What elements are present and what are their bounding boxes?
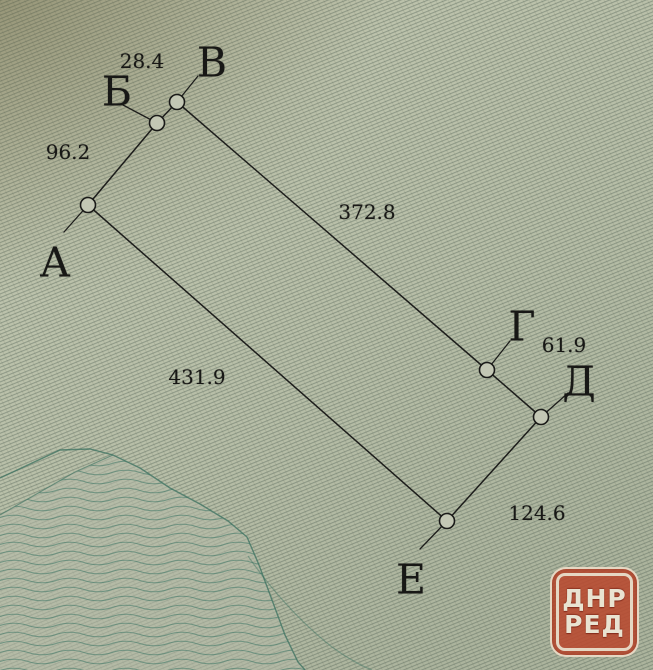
side-length-bv: 28.4 (120, 51, 165, 71)
side-length-ab: 96.2 (46, 142, 91, 162)
vertex-label-e: Е (396, 560, 426, 601)
vertex-label-g: Г (508, 307, 535, 348)
side-length-ea: 431.9 (168, 367, 225, 387)
vertex-label-d: Д (562, 362, 595, 403)
vertex-marker-a (81, 198, 96, 213)
side-length-de: 124.6 (508, 503, 565, 523)
vertex-marker-e (440, 514, 455, 529)
scanned-survey-map: А Б В Г Д Е 96.2 28.4 372.8 61.9 124.6 4… (0, 0, 653, 670)
vertex-marker-d (534, 410, 549, 425)
watermark-line-1: ДНР (562, 587, 627, 611)
vertex-marker-b (150, 116, 165, 131)
vertex-label-b: Б (102, 72, 132, 113)
watermark-line-2: РЕД (564, 613, 625, 637)
side-length-gd: 61.9 (542, 335, 587, 355)
vertex-label-a: А (39, 243, 70, 284)
vertex-marker-g (480, 363, 495, 378)
watermark-badge: ДНР РЕД (550, 567, 639, 657)
vertex-marker-v (170, 95, 185, 110)
vertex-label-v: В (197, 43, 227, 84)
side-length-vg: 372.8 (338, 202, 395, 222)
watermark-frame: ДНР РЕД (556, 573, 633, 651)
